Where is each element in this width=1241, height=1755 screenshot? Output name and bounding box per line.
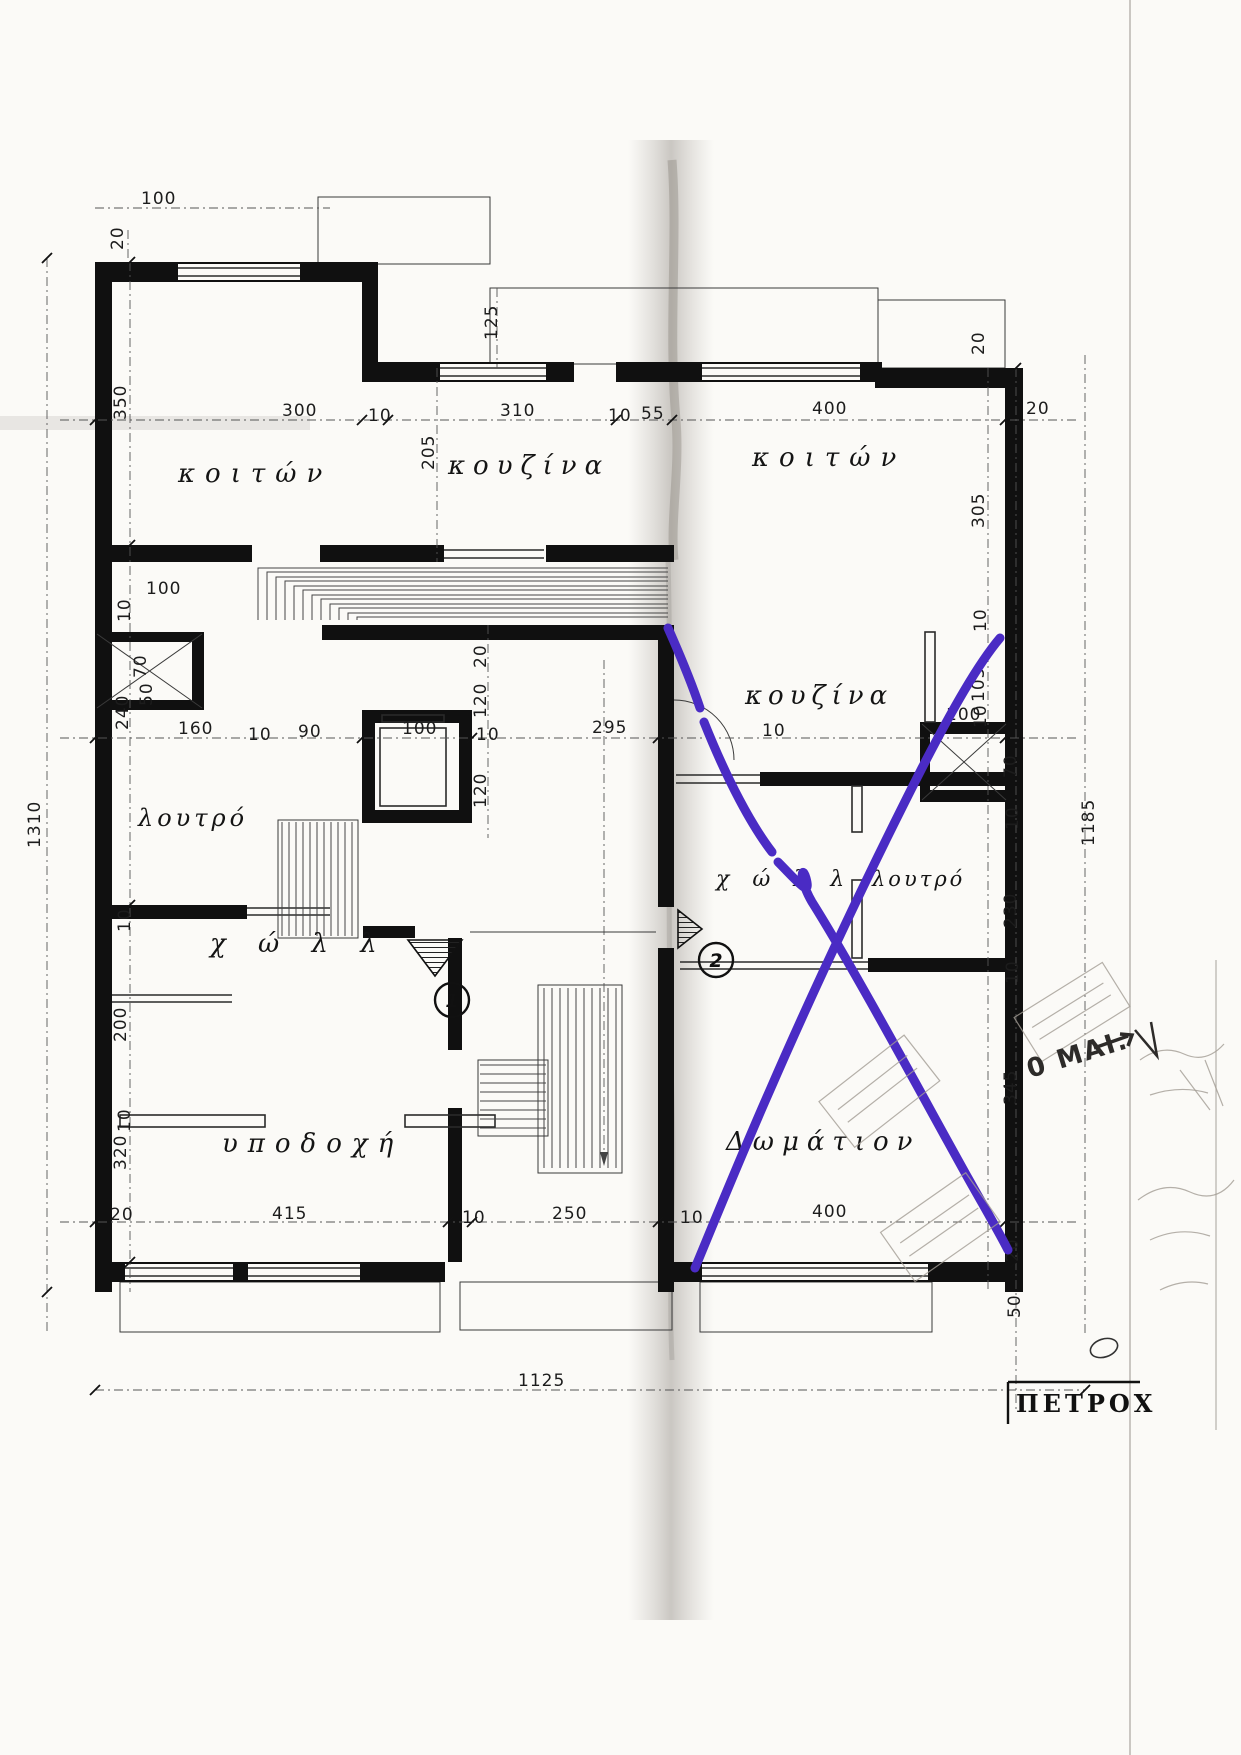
dim-label: 20 (110, 1205, 134, 1225)
dim-label-total-width: 1125 (518, 1371, 565, 1391)
dim-label: 20 (471, 644, 491, 668)
dim-label: 70 (131, 654, 151, 678)
dim-label: 20 (969, 331, 989, 355)
dim-label: 310 (500, 401, 535, 421)
dim-label: 320 (111, 1135, 131, 1170)
dim-label: 415 (272, 1204, 307, 1224)
room-label-kitchen-right: κουζίνα (744, 681, 893, 711)
dim-label: 120 (471, 683, 491, 718)
dim-label: 305 (969, 493, 989, 528)
dim-label: 10 (462, 1208, 486, 1228)
room-label-bathroom-left: λουτρό (137, 804, 248, 832)
room-label-reception: υποδοχή (222, 1129, 403, 1159)
room-label-bedroom-right: κοιτών (751, 443, 906, 473)
dim-label: 300 (282, 401, 317, 421)
dim-label: 295 (592, 718, 627, 738)
dim-label: 160 (178, 719, 213, 739)
dim-label: 10 (1003, 806, 1023, 830)
dim-label: 10 (115, 1108, 135, 1132)
dim-label: 50 (137, 682, 157, 706)
dim-label: 230 (1001, 893, 1021, 928)
stair-flight-hatch (278, 820, 358, 938)
dim-label: 10 (1003, 960, 1023, 984)
dim-label: 10 (971, 608, 991, 632)
room-label-hall-left: χ ώ λ λ (208, 929, 389, 959)
dim-label-total-right: 1185 (1079, 799, 1099, 846)
dim-label: 100 (402, 719, 437, 739)
dim-label: 10 (368, 406, 392, 426)
dim-label: 70 (1001, 754, 1021, 778)
dim-label: 10 (476, 725, 500, 745)
dim-label: 100 (146, 579, 181, 599)
title-block: ΠΕΤΡΟΧ (1008, 1335, 1156, 1424)
dim-label: 10 (115, 908, 135, 932)
dim-label: 200 (111, 1007, 131, 1042)
dim-label: 10 (762, 721, 786, 741)
stamp-date-text: 0 MAI. (1023, 1025, 1132, 1084)
handwritten-circle-mark (1088, 1335, 1120, 1361)
dim-label: 120 (471, 773, 491, 808)
dim-label: 55 (641, 404, 665, 424)
floor-plan-drawing: 100 20 350 300 10 310 10 55 400 20 125 2… (0, 0, 1241, 1755)
dim-label: 10 (680, 1208, 704, 1228)
room-label-kitchen-top: κουζίνα (447, 451, 610, 481)
dim-label: 345 (1001, 1070, 1021, 1105)
title-block-text: ΠΕΤΡΟΧ (1016, 1389, 1156, 1418)
dim-label: 400 (812, 399, 847, 419)
dim-label: 10 (608, 406, 632, 426)
dim-label: 400 (812, 1202, 847, 1222)
dim-label: 10 (248, 725, 272, 745)
dim-label: 125 (482, 305, 502, 340)
room-label-bedroom-left: κοιτών (177, 459, 332, 489)
staircase (258, 568, 668, 1173)
dim-label: 20 (1026, 399, 1050, 419)
room-label-bathroom-right: λουτρό (871, 867, 965, 891)
scanned-floor-plan-sheet: 100 20 350 300 10 310 10 55 400 20 125 2… (0, 0, 1241, 1755)
stamps-and-scribbles: 0 MAI. (819, 962, 1234, 1290)
dim-label-total-left: 1310 (25, 801, 45, 848)
dim-label: 20 (108, 226, 128, 250)
entrance-number-2: 2 (709, 950, 722, 972)
dim-label: 50 (1005, 1294, 1025, 1318)
dim-label: 205 (419, 435, 439, 470)
dim-label: 100 (141, 189, 176, 209)
dim-label: 250 (552, 1204, 587, 1224)
dim-label: 10 (115, 598, 135, 622)
dim-label: 90 (298, 722, 322, 742)
dim-label: 240 (113, 695, 133, 730)
entrance-number-1: 1 (445, 990, 458, 1012)
dim-label: 350 (111, 385, 131, 420)
